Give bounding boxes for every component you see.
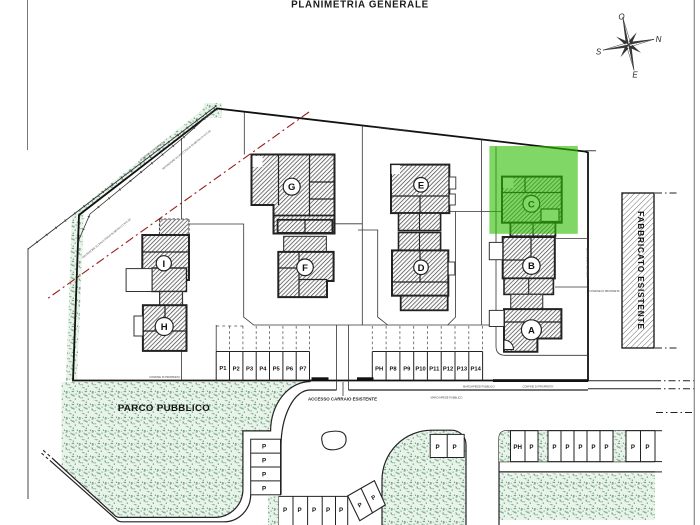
svg-text:PLANIMETRIA GENERALE: PLANIMETRIA GENERALE <box>291 0 429 11</box>
svg-text:P13: P13 <box>457 367 468 373</box>
svg-text:P: P <box>578 444 582 451</box>
svg-text:P: P <box>262 444 266 451</box>
svg-text:CONFINE DI PROPRIETA': CONFINE DI PROPRIETA' <box>586 248 590 280</box>
svg-text:P10: P10 <box>415 367 425 373</box>
svg-text:B: B <box>528 261 535 272</box>
svg-text:P: P <box>591 444 595 451</box>
svg-text:O: O <box>618 13 624 22</box>
svg-text:H: H <box>161 322 168 333</box>
svg-text:P: P <box>298 507 302 514</box>
svg-text:P9: P9 <box>403 367 411 373</box>
svg-text:P: P <box>312 507 316 514</box>
svg-text:P: P <box>453 444 457 451</box>
svg-text:P12: P12 <box>443 367 453 373</box>
svg-text:P: P <box>552 444 556 451</box>
svg-text:P2: P2 <box>233 367 240 373</box>
svg-text:P: P <box>283 507 287 514</box>
svg-text:CONFINE DI PROPRIETA': CONFINE DI PROPRIETA' <box>589 289 621 293</box>
svg-text:P5: P5 <box>273 367 281 373</box>
svg-text:MARCIAPIEDE PUBBLICO: MARCIAPIEDE PUBBLICO <box>431 395 463 399</box>
svg-text:P: P <box>631 444 635 451</box>
svg-text:G: G <box>288 182 295 193</box>
svg-text:ACCESSO CARRAIO ESISTENTE: ACCESSO CARRAIO ESISTENTE <box>308 396 377 401</box>
svg-text:PARCO PUBBLICO: PARCO PUBBLICO <box>118 403 210 414</box>
svg-text:E: E <box>418 180 424 191</box>
svg-text:S: S <box>596 48 602 57</box>
svg-text:P1: P1 <box>219 366 227 372</box>
svg-text:P4: P4 <box>259 367 267 373</box>
svg-text:CONFINE DI PROPRIETA': CONFINE DI PROPRIETA' <box>149 375 181 379</box>
svg-text:E: E <box>632 71 638 80</box>
svg-text:D: D <box>418 263 425 274</box>
svg-text:N: N <box>656 35 662 44</box>
svg-text:P: P <box>436 444 440 451</box>
svg-text:P: P <box>262 485 266 492</box>
svg-text:CONFINE DI PROPRIETA': CONFINE DI PROPRIETA' <box>523 385 555 389</box>
svg-text:P14: P14 <box>471 367 482 373</box>
svg-text:PH: PH <box>513 444 522 451</box>
svg-text:P7: P7 <box>299 367 306 373</box>
svg-text:P: P <box>262 471 266 478</box>
svg-text:P: P <box>565 444 569 451</box>
svg-text:A: A <box>528 325 535 336</box>
svg-text:P: P <box>326 507 330 514</box>
svg-text:P: P <box>529 444 533 451</box>
svg-text:P: P <box>262 458 266 465</box>
svg-text:FABBRICATO ESISTENTE: FABBRICATO ESISTENTE <box>636 211 645 330</box>
svg-text:P: P <box>604 444 608 451</box>
svg-text:I: I <box>162 259 165 270</box>
svg-text:PH: PH <box>375 367 383 373</box>
svg-text:MARCIAPIEDE PUBBLICO: MARCIAPIEDE PUBBLICO <box>463 385 495 389</box>
svg-text:P: P <box>339 507 343 514</box>
svg-text:P8: P8 <box>389 367 397 373</box>
svg-text:P11: P11 <box>429 367 440 373</box>
svg-text:P: P <box>645 444 649 451</box>
svg-text:F: F <box>302 263 308 274</box>
svg-text:P3: P3 <box>246 367 254 373</box>
svg-text:P6: P6 <box>286 367 294 373</box>
